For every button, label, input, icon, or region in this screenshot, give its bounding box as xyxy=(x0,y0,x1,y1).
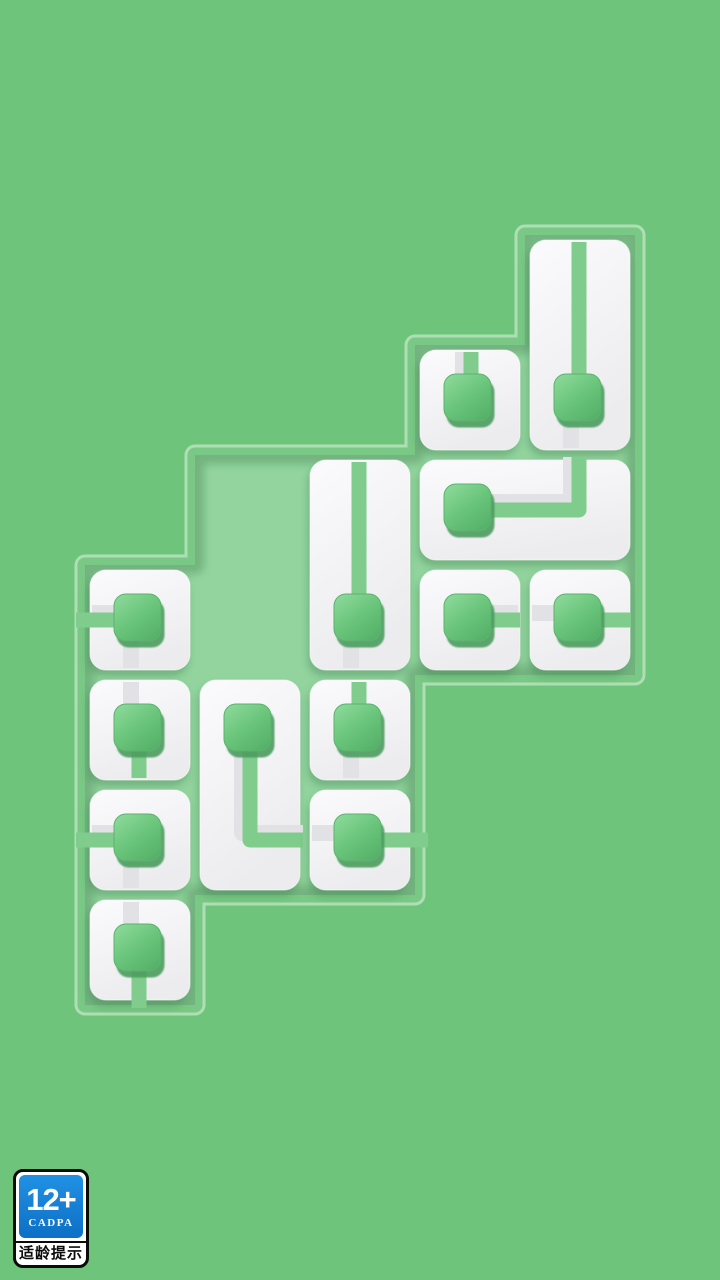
tile-knob[interactable] xyxy=(444,484,491,531)
tile-knob[interactable] xyxy=(114,704,161,751)
age-rating-badge: 12+ CADPA 适龄提示 xyxy=(13,1169,89,1268)
tile-c0-r4[interactable] xyxy=(90,680,190,780)
tile-knob[interactable] xyxy=(114,924,161,971)
tile-knob[interactable] xyxy=(224,704,271,751)
tile-c0-r5[interactable] xyxy=(76,790,190,890)
tile-knob[interactable] xyxy=(554,594,601,641)
tile-knob[interactable] xyxy=(334,814,381,861)
age-rating-blue-panel: 12+ CADPA xyxy=(19,1175,83,1238)
tile-c0-r3[interactable] xyxy=(76,570,190,670)
tile-c3c4-r2-wide[interactable] xyxy=(420,457,630,560)
tile-c4-r3[interactable] xyxy=(530,570,631,670)
tile-knob[interactable] xyxy=(554,374,601,421)
age-rating-org: CADPA xyxy=(28,1215,73,1232)
tile-knob[interactable] xyxy=(444,594,491,641)
puzzle-board xyxy=(0,0,720,1280)
age-rating-caption: 适龄提示 xyxy=(16,1241,86,1265)
game-screen: { "scene": { "width": 720, "height": 128… xyxy=(0,0,720,1280)
tile-c3-r3[interactable] xyxy=(420,570,520,670)
tile-knob[interactable] xyxy=(334,704,381,751)
tile-c2-r2-tall[interactable] xyxy=(310,460,410,670)
tile-knob[interactable] xyxy=(444,374,491,421)
tile-c4-r0-tall[interactable] xyxy=(530,240,630,450)
tile-c0-r6[interactable] xyxy=(90,900,190,1008)
tile-c1-r4-tall[interactable] xyxy=(200,680,303,890)
tile-c2-r5[interactable] xyxy=(310,790,428,890)
tile-knob[interactable] xyxy=(114,594,161,641)
age-rating-value: 12+ xyxy=(26,1184,76,1215)
tile-knob[interactable] xyxy=(334,594,381,641)
tile-c2-r4[interactable] xyxy=(310,680,410,780)
tile-c3-r1[interactable] xyxy=(420,350,520,450)
tile-knob[interactable] xyxy=(114,814,161,861)
